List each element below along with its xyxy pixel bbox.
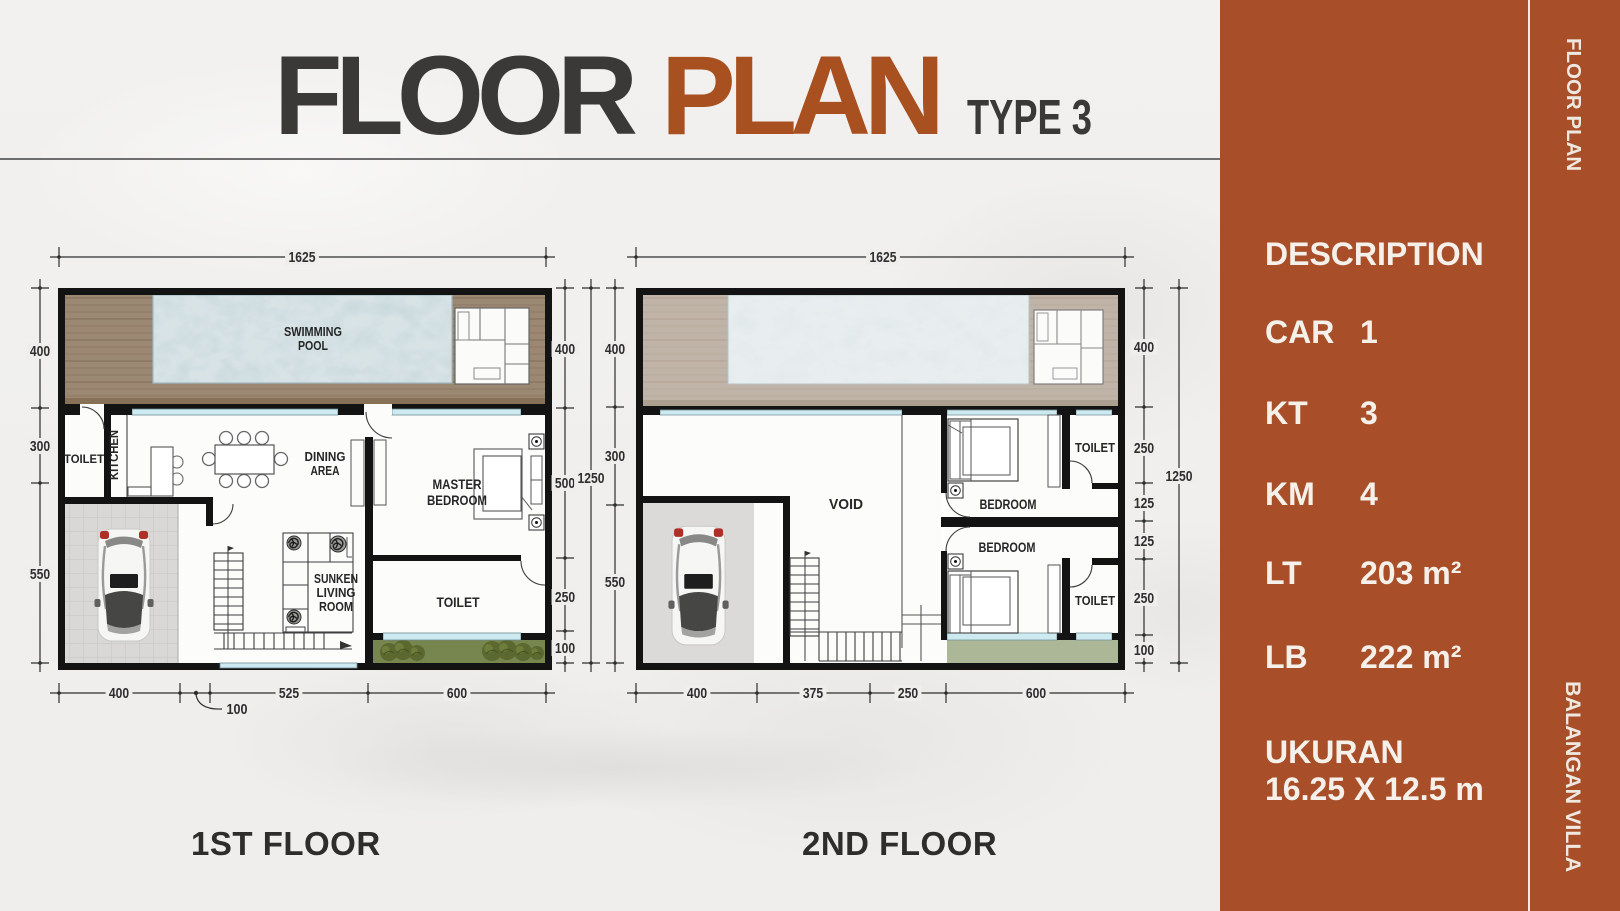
- svg-text:250: 250: [898, 686, 918, 702]
- svg-text:SUNKEN: SUNKEN: [314, 572, 358, 586]
- svg-text:500: 500: [555, 476, 575, 492]
- svg-text:ROOM: ROOM: [319, 600, 353, 614]
- svg-text:600: 600: [1026, 686, 1046, 702]
- svg-text:400: 400: [555, 342, 575, 358]
- svg-text:100: 100: [555, 641, 575, 657]
- svg-text:250: 250: [1134, 591, 1154, 607]
- svg-text:POOL: POOL: [298, 339, 328, 353]
- svg-text:AREA: AREA: [311, 463, 340, 478]
- svg-text:550: 550: [30, 567, 50, 583]
- svg-text:400: 400: [30, 344, 50, 360]
- svg-text:DINING: DINING: [305, 449, 346, 464]
- svg-text:525: 525: [279, 686, 299, 702]
- svg-text:100: 100: [1134, 643, 1154, 659]
- svg-text:300: 300: [30, 439, 50, 455]
- svg-text:TOILET: TOILET: [64, 452, 105, 466]
- svg-text:SWIMMING: SWIMMING: [284, 325, 342, 339]
- svg-text:1250: 1250: [578, 471, 605, 487]
- svg-text:TOILET: TOILET: [1075, 440, 1115, 455]
- svg-text:BEDROOM: BEDROOM: [980, 497, 1037, 512]
- svg-text:BEDROOM: BEDROOM: [979, 540, 1036, 555]
- svg-text:MASTER: MASTER: [433, 476, 482, 492]
- svg-text:375: 375: [803, 686, 823, 702]
- svg-text:VOID: VOID: [829, 496, 863, 513]
- svg-text:TOILET: TOILET: [1075, 593, 1115, 608]
- svg-text:KITCHEN: KITCHEN: [107, 430, 121, 480]
- svg-text:550: 550: [605, 575, 625, 591]
- svg-text:400: 400: [109, 686, 129, 702]
- svg-text:250: 250: [555, 590, 575, 606]
- svg-text:400: 400: [687, 686, 707, 702]
- svg-text:TOILET: TOILET: [437, 594, 480, 610]
- svg-text:250: 250: [1134, 441, 1154, 457]
- svg-text:LIVING: LIVING: [317, 586, 356, 600]
- svg-text:400: 400: [1134, 340, 1154, 356]
- svg-text:1625: 1625: [870, 250, 897, 266]
- svg-text:600: 600: [447, 686, 467, 702]
- svg-text:100: 100: [227, 702, 248, 718]
- svg-text:400: 400: [605, 342, 625, 358]
- svg-text:300: 300: [605, 449, 625, 465]
- svg-text:BEDROOM: BEDROOM: [427, 492, 487, 508]
- svg-text:1625: 1625: [289, 250, 316, 266]
- svg-text:125: 125: [1134, 496, 1154, 512]
- svg-text:125: 125: [1134, 534, 1154, 550]
- svg-text:1250: 1250: [1166, 469, 1193, 485]
